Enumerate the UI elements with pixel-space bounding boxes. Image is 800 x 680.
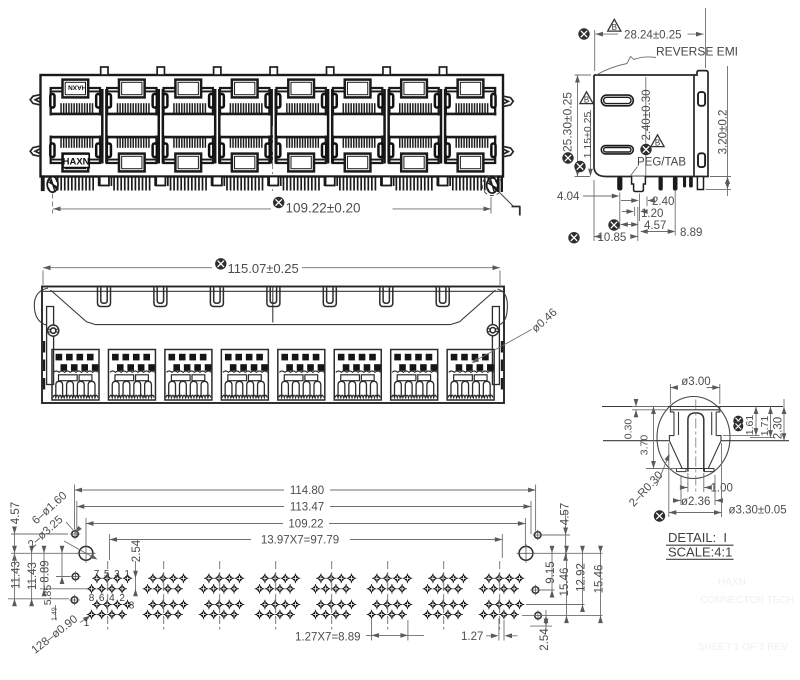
svg-text:3.70: 3.70 [639, 435, 651, 456]
svg-text:2.54: 2.54 [539, 628, 551, 651]
svg-text:REVERSE EMI: REVERSE EMI [656, 45, 738, 59]
svg-text:5.85: 5.85 [42, 585, 54, 606]
svg-text:HAXN: HAXN [68, 84, 87, 91]
svg-text:1.27: 1.27 [461, 631, 483, 643]
svg-text:114.80: 114.80 [290, 485, 324, 497]
svg-text:13.97X7=97.79: 13.97X7=97.79 [261, 535, 339, 547]
svg-text:6: 6 [99, 593, 105, 604]
svg-text:9.15: 9.15 [545, 561, 557, 583]
svg-text:4.57: 4.57 [10, 502, 22, 524]
svg-text:1.27X7=8.89: 1.27X7=8.89 [295, 632, 361, 644]
svg-text:5: 5 [104, 569, 110, 580]
svg-text:7: 7 [94, 569, 100, 580]
svg-text:2.40: 2.40 [652, 196, 674, 208]
svg-text:CONNECTOR TECH: CONNECTOR TECH [700, 595, 794, 606]
svg-text:SCALE:4:1: SCALE:4:1 [668, 545, 732, 560]
svg-text:28.24±0.25: 28.24±0.25 [624, 30, 681, 42]
svg-text:3: 3 [114, 569, 120, 580]
svg-text:2.54: 2.54 [131, 539, 143, 562]
svg-text:8.89: 8.89 [680, 227, 702, 239]
svg-text:1: 1 [84, 618, 90, 629]
svg-text:1.61: 1.61 [744, 415, 756, 436]
svg-text:15.46: 15.46 [594, 565, 606, 594]
svg-text:PEG/TAB: PEG/TAB [637, 157, 686, 169]
svg-text:HAXN: HAXN [63, 156, 90, 167]
svg-text:4: 4 [109, 593, 115, 604]
svg-text:109.22: 109.22 [288, 519, 323, 531]
svg-text:1.15±0.25: 1.15±0.25 [582, 112, 594, 159]
svg-text:113.47: 113.47 [290, 502, 324, 514]
svg-text:109.22±0.20: 109.22±0.20 [286, 200, 361, 215]
svg-text:1.49: 1.49 [52, 607, 59, 621]
svg-text:12.92: 12.92 [576, 563, 588, 592]
svg-text:15.46: 15.46 [559, 568, 571, 597]
svg-text:8: 8 [129, 601, 135, 612]
svg-text:HAXN: HAXN [718, 577, 746, 588]
svg-text:ø2.36: ø2.36 [681, 496, 710, 508]
svg-text:2.30: 2.30 [773, 417, 785, 439]
svg-text:2.40±0.30: 2.40±0.30 [641, 89, 653, 140]
svg-text:2: 2 [119, 593, 125, 604]
svg-text:1.20: 1.20 [641, 208, 663, 220]
svg-text:11.43: 11.43 [27, 562, 39, 590]
svg-text:1: 1 [124, 569, 130, 580]
svg-text:25.30±0.25: 25.30±0.25 [561, 92, 575, 152]
svg-text:4.04: 4.04 [557, 191, 580, 203]
svg-text:SHEET 1 OF 1 REV: SHEET 1 OF 1 REV [698, 642, 788, 653]
svg-text:8: 8 [89, 593, 95, 604]
svg-text:115.07±0.25: 115.07±0.25 [228, 261, 299, 276]
svg-text:11.43: 11.43 [11, 561, 23, 589]
svg-text:1.71: 1.71 [759, 416, 771, 437]
svg-text:0.30: 0.30 [623, 419, 635, 440]
svg-text:ø3.30±0.05: ø3.30±0.05 [729, 505, 787, 517]
svg-text:10.85: 10.85 [598, 232, 627, 244]
svg-text:8.89: 8.89 [40, 560, 52, 582]
svg-text:3.20±0.2: 3.20±0.2 [718, 110, 730, 155]
svg-text:DETAIL: I: DETAIL: I [668, 530, 727, 545]
svg-text:ø3.00: ø3.00 [681, 376, 710, 388]
svg-text:4.57: 4.57 [560, 503, 572, 525]
